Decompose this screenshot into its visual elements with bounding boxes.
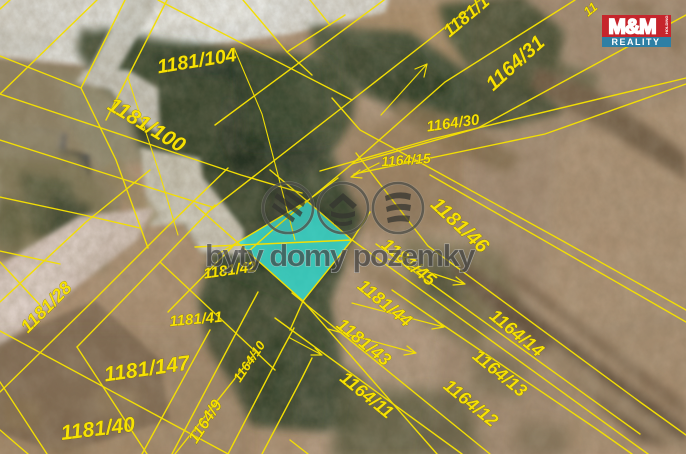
- svg-text:byty domy pozemky: byty domy pozemky: [205, 238, 476, 273]
- svg-text:HOLDING: HOLDING: [664, 16, 669, 34]
- svg-text:REALITY: REALITY: [611, 37, 660, 47]
- svg-text:M&M: M&M: [608, 16, 656, 39]
